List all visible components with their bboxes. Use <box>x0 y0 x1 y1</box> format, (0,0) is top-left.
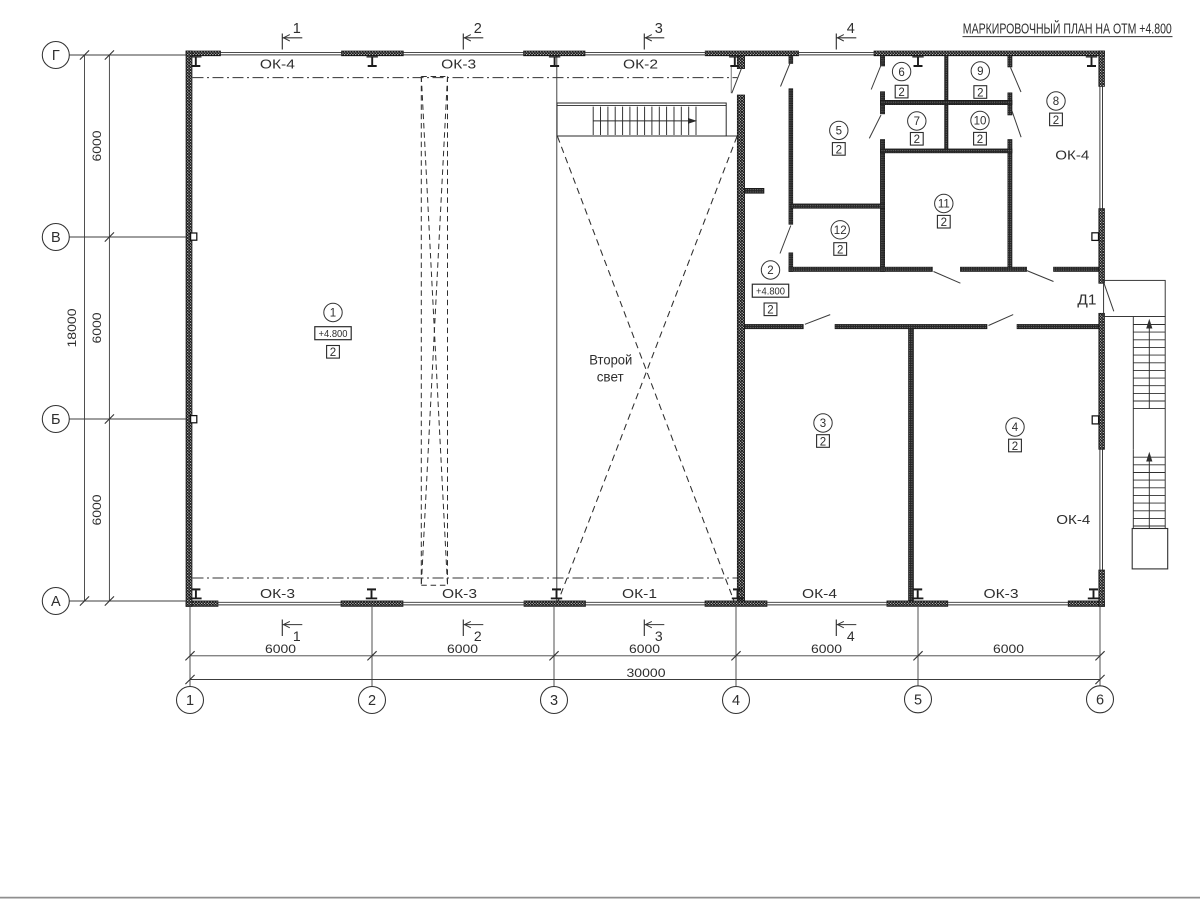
svg-text:6000: 6000 <box>90 312 104 343</box>
svg-text:2: 2 <box>1053 115 1059 127</box>
svg-text:1: 1 <box>293 21 301 37</box>
svg-text:ОК-4: ОК-4 <box>1056 512 1090 527</box>
svg-text:3: 3 <box>820 418 826 430</box>
svg-text:+4.800: +4.800 <box>756 286 785 298</box>
svg-text:Д1: Д1 <box>1077 293 1096 309</box>
svg-text:А: А <box>51 594 61 610</box>
svg-text:2: 2 <box>767 305 773 317</box>
svg-text:2: 2 <box>836 144 842 156</box>
svg-text:8: 8 <box>1053 96 1059 108</box>
svg-text:ОК-3: ОК-3 <box>984 586 1019 601</box>
svg-text:Г: Г <box>52 48 60 64</box>
svg-text:9: 9 <box>977 66 983 78</box>
svg-text:2: 2 <box>977 87 983 99</box>
svg-text:2: 2 <box>474 21 482 37</box>
svg-text:2: 2 <box>898 87 904 99</box>
svg-text:6000: 6000 <box>90 494 104 525</box>
svg-text:6: 6 <box>898 67 904 79</box>
svg-text:ОК-3: ОК-3 <box>441 57 476 72</box>
svg-text:ОК-2: ОК-2 <box>623 57 658 72</box>
svg-text:2: 2 <box>330 347 336 359</box>
svg-text:6000: 6000 <box>265 642 296 656</box>
svg-text:3: 3 <box>655 628 663 644</box>
svg-text:ОК-3: ОК-3 <box>260 586 295 601</box>
svg-text:6000: 6000 <box>90 130 104 161</box>
svg-text:4: 4 <box>847 21 855 37</box>
svg-text:2: 2 <box>914 134 920 146</box>
svg-text:свет: свет <box>597 370 624 385</box>
svg-text:6000: 6000 <box>993 642 1024 656</box>
svg-text:7: 7 <box>914 116 920 128</box>
svg-text:4: 4 <box>1012 422 1019 434</box>
svg-text:5: 5 <box>914 693 922 709</box>
svg-text:6: 6 <box>1096 693 1104 709</box>
svg-text:2: 2 <box>820 436 826 448</box>
svg-text:3: 3 <box>655 21 663 37</box>
svg-text:2: 2 <box>977 134 983 146</box>
svg-text:2: 2 <box>767 265 773 277</box>
svg-text:2: 2 <box>368 693 376 709</box>
svg-text:В: В <box>51 230 61 246</box>
svg-text:ОК-3: ОК-3 <box>442 586 477 601</box>
svg-text:30000: 30000 <box>627 666 666 680</box>
svg-text:12: 12 <box>834 225 847 237</box>
svg-text:ОК-4: ОК-4 <box>802 586 837 601</box>
svg-text:2: 2 <box>474 628 482 644</box>
svg-text:Б: Б <box>51 412 61 428</box>
svg-text:1: 1 <box>293 628 301 644</box>
svg-text:3: 3 <box>550 693 558 709</box>
svg-text:2: 2 <box>837 244 843 256</box>
svg-text:2: 2 <box>1012 441 1018 453</box>
svg-text:МАРКИРОВОЧНЫЙ ПЛАН НА ОТМ +4.8: МАРКИРОВОЧНЫЙ ПЛАН НА ОТМ +4.800 <box>963 19 1172 37</box>
svg-text:5: 5 <box>836 126 842 138</box>
svg-text:18000: 18000 <box>65 308 79 347</box>
svg-text:1: 1 <box>330 308 336 320</box>
svg-text:11: 11 <box>938 199 950 211</box>
svg-text:2: 2 <box>941 217 947 229</box>
svg-text:ОК-4: ОК-4 <box>1055 147 1089 162</box>
svg-text:ОК-1: ОК-1 <box>622 586 657 601</box>
svg-text:4: 4 <box>732 693 740 709</box>
svg-text:6000: 6000 <box>811 642 842 656</box>
svg-text:1: 1 <box>186 693 194 709</box>
svg-text:10: 10 <box>974 116 987 128</box>
svg-text:4: 4 <box>847 628 855 644</box>
svg-text:Второй: Второй <box>589 353 632 368</box>
svg-text:+4.800: +4.800 <box>319 328 348 340</box>
svg-text:ОК-4: ОК-4 <box>260 57 295 72</box>
